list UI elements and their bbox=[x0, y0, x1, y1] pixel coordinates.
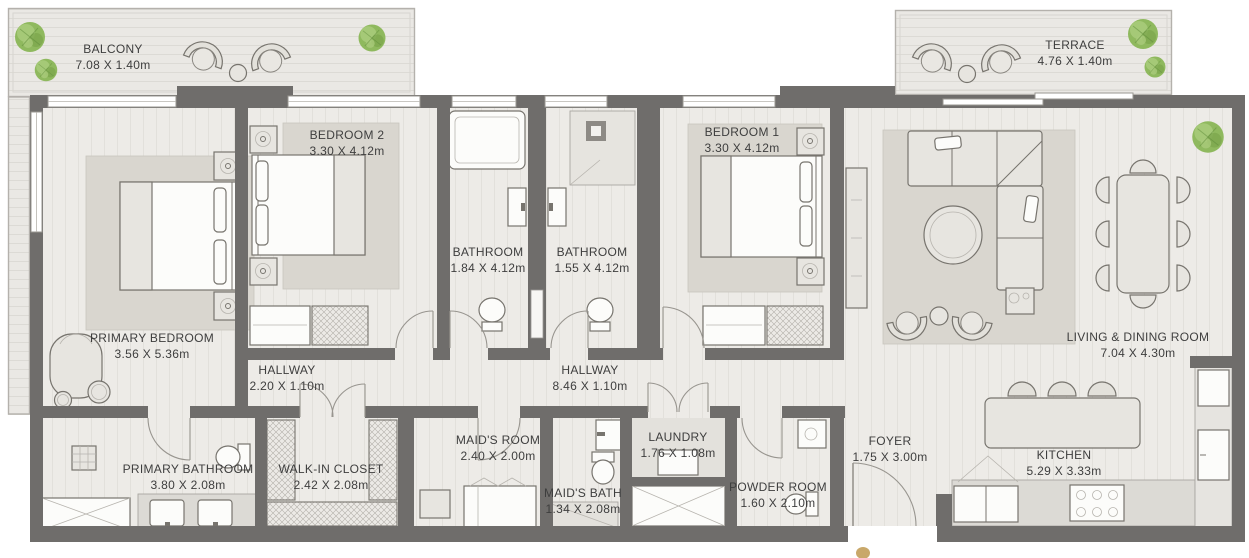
room-dims: 1.84 X 4.12m bbox=[451, 260, 526, 276]
room-name: FOYER bbox=[853, 433, 928, 449]
room-dims: 3.80 X 2.08m bbox=[123, 477, 254, 493]
room-name: LAUNDRY bbox=[641, 429, 716, 445]
room-label-foyer: FOYER 1.75 X 3.00m bbox=[853, 433, 928, 465]
room-name: WALK-IN CLOSET bbox=[278, 461, 383, 477]
room-label-primary-bathroom: PRIMARY BATHROOM 3.80 X 2.08m bbox=[123, 461, 254, 493]
tree-icon bbox=[15, 22, 45, 52]
room-label-terrace: TERRACE 4.76 X 1.40m bbox=[1038, 37, 1113, 69]
room-name: PRIMARY BATHROOM bbox=[123, 461, 254, 477]
tree-icon bbox=[1128, 19, 1158, 49]
room-dims: 3.30 X 4.12m bbox=[705, 140, 780, 156]
room-name: BATHROOM bbox=[555, 244, 630, 260]
room-dims: 2.42 X 2.08m bbox=[278, 477, 383, 493]
room-dims: 8.46 X 1.10m bbox=[553, 378, 628, 394]
room-dims: 1.60 X 2.10m bbox=[729, 495, 827, 511]
room-label-walk-in-closet: WALK-IN CLOSET 2.42 X 2.08m bbox=[278, 461, 383, 493]
room-dims: 7.04 X 4.30m bbox=[1067, 345, 1210, 361]
room-label-bedroom-1: BEDROOM 1 3.30 X 4.12m bbox=[705, 124, 780, 156]
room-name: MAID'S BATH bbox=[544, 485, 622, 501]
room-name: POWDER ROOM bbox=[729, 479, 827, 495]
room-name: KITCHEN bbox=[1027, 447, 1102, 463]
room-label-bathroom-b: BATHROOM 1.55 X 4.12m bbox=[555, 244, 630, 276]
room-label-bedroom-2: BEDROOM 2 3.30 X 4.12m bbox=[310, 127, 385, 159]
room-name: HALLWAY bbox=[553, 362, 628, 378]
room-dims: 4.76 X 1.40m bbox=[1038, 53, 1113, 69]
room-dims: 1.75 X 3.00m bbox=[853, 449, 928, 465]
room-name: BEDROOM 2 bbox=[310, 127, 385, 143]
room-name: LIVING & DINING ROOM bbox=[1067, 329, 1210, 345]
room-dims: 2.20 X 1.10m bbox=[250, 378, 325, 394]
room-dims: 1.55 X 4.12m bbox=[555, 260, 630, 276]
brand-mark-icon bbox=[856, 547, 870, 558]
room-name: BATHROOM bbox=[451, 244, 526, 260]
tree-icon bbox=[359, 25, 386, 52]
room-label-hallway-a: HALLWAY 2.20 X 1.10m bbox=[250, 362, 325, 394]
room-dims: 1.76 X 1.08m bbox=[641, 445, 716, 461]
room-name: MAID'S ROOM bbox=[456, 432, 540, 448]
room-dims: 2.40 X 2.00m bbox=[456, 448, 540, 464]
room-label-primary-bedroom: PRIMARY BEDROOM 3.56 X 5.36m bbox=[90, 330, 214, 362]
room-label-living-dining: LIVING & DINING ROOM 7.04 X 4.30m bbox=[1067, 329, 1210, 361]
room-name: BEDROOM 1 bbox=[705, 124, 780, 140]
room-dims: 7.08 X 1.40m bbox=[76, 57, 151, 73]
entrance-opening bbox=[848, 526, 937, 542]
room-name: TERRACE bbox=[1038, 37, 1113, 53]
floor-plan-page: { "plan_type": "apartment-floor-plan", "… bbox=[0, 0, 1249, 558]
room-label-maids-room: MAID'S ROOM 2.40 X 2.00m bbox=[456, 432, 540, 464]
room-label-hallway-b: HALLWAY 8.46 X 1.10m bbox=[553, 362, 628, 394]
room-label-balcony: BALCONY 7.08 X 1.40m bbox=[76, 41, 151, 73]
room-label-kitchen: KITCHEN 5.29 X 3.33m bbox=[1027, 447, 1102, 479]
room-name: PRIMARY BEDROOM bbox=[90, 330, 214, 346]
room-dims: 3.30 X 4.12m bbox=[310, 143, 385, 159]
tree-icon bbox=[1145, 57, 1166, 78]
room-name: BALCONY bbox=[76, 41, 151, 57]
tree-icon bbox=[35, 59, 58, 82]
room-label-powder-room: POWDER ROOM 1.60 X 2.10m bbox=[729, 479, 827, 511]
room-dims: 5.29 X 3.33m bbox=[1027, 463, 1102, 479]
room-dims: 1.34 X 2.08m bbox=[544, 501, 622, 517]
room-name: HALLWAY bbox=[250, 362, 325, 378]
room-label-maids-bath: MAID'S BATH 1.34 X 2.08m bbox=[544, 485, 622, 517]
room-label-bathroom-a: BATHROOM 1.84 X 4.12m bbox=[451, 244, 526, 276]
room-dims: 3.56 X 5.36m bbox=[90, 346, 214, 362]
room-label-laundry: LAUNDRY 1.76 X 1.08m bbox=[641, 429, 716, 461]
